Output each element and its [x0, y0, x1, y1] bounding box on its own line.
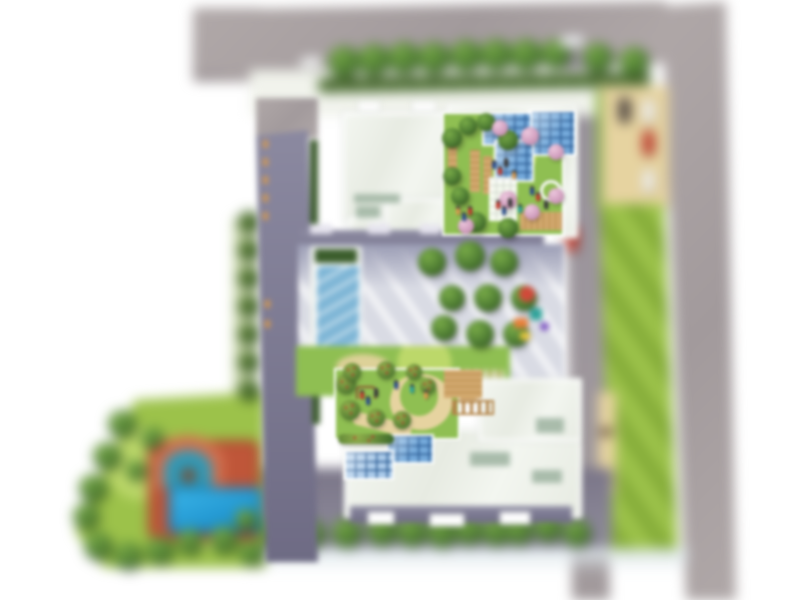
south-tree-row [482, 518, 510, 546]
facade-window [265, 320, 270, 328]
facade-window [263, 212, 268, 220]
roof-vent-2 [356, 206, 380, 218]
spa-circle [181, 468, 196, 483]
courtyard-trees [474, 284, 502, 312]
north-garden-visitors [512, 170, 516, 179]
facade-window [263, 194, 268, 202]
street-trees [510, 39, 542, 71]
west-hedgerow [238, 211, 260, 233]
south-garden-visitors [394, 380, 398, 389]
southwest-boundary-trees [79, 474, 107, 502]
under-building-ground [262, 468, 612, 548]
courtyard-trees [455, 241, 485, 271]
south-tree-row [427, 518, 457, 548]
south-garden-visitors [410, 384, 414, 393]
west-wing-roof-cap [256, 98, 318, 138]
south-garden-trees [406, 364, 422, 380]
north-garden-visitors [536, 192, 540, 201]
north-roof-garden [444, 114, 562, 234]
north-garden-trees-pink [524, 204, 540, 220]
south-tree-row [534, 514, 562, 542]
lower-wing-stub-2 [430, 514, 464, 526]
southwest-boundary-trees [73, 503, 99, 529]
south-tree-row [332, 518, 362, 548]
south-tree-row [262, 517, 292, 547]
north-skylight-2 [482, 112, 532, 146]
south-garden-trees [420, 378, 436, 394]
north-garden-trees-pink [548, 188, 564, 204]
lap-pool [315, 264, 361, 374]
roof-access-box-2 [412, 102, 436, 111]
street-trees [418, 42, 450, 74]
west-hedgerow [238, 267, 260, 289]
courtyard-trees [511, 285, 537, 311]
west-wing-planter [310, 140, 318, 252]
south-wing-roof [344, 428, 582, 518]
garden-bench [600, 428, 612, 436]
roof-vent-5 [532, 470, 562, 483]
southwest-boundary-trees [114, 542, 142, 570]
southwest-boundary-trees [210, 526, 238, 554]
south-tree-row [563, 519, 591, 547]
south-tree-row [455, 517, 483, 545]
street-trees [583, 43, 613, 73]
north-garden-visitors [498, 166, 502, 175]
southwest-lawn-trees [235, 509, 257, 531]
facade-window [263, 158, 268, 166]
balcony-stub-3 [420, 224, 440, 234]
north-hedge [318, 72, 650, 93]
west-hedgerow [238, 351, 260, 373]
north-sidewalk [250, 70, 654, 116]
garden-bench-2 [599, 476, 613, 485]
playground-climber [530, 308, 542, 320]
southwest-boundary-trees [239, 539, 265, 565]
south-sidewalk [246, 548, 688, 574]
north-garden-visitors [492, 160, 496, 169]
lower-wing-stub [368, 512, 394, 524]
north-garden-visitors [456, 206, 460, 215]
north-wing-roof-topstrip [446, 104, 578, 126]
north-skylight [528, 110, 576, 156]
street-trees [388, 42, 420, 74]
west-hedgerow [238, 295, 260, 317]
south-skylight-2 [344, 450, 394, 480]
south-wing-roof-east [478, 378, 582, 442]
playground-slide [514, 318, 528, 328]
west-hedgerow [238, 239, 260, 261]
parking-green-edge [596, 90, 602, 206]
north-garden-trees-pink [548, 144, 564, 160]
garden-trellis [490, 178, 516, 220]
deck-bench [452, 400, 494, 415]
southwest-lawn-trees [126, 460, 146, 480]
north-garden-trees-pink [499, 191, 517, 209]
street-trees [541, 39, 571, 69]
roof-vent [354, 194, 400, 203]
balcony-stub-4 [484, 224, 500, 234]
south-garden-visitors [374, 388, 378, 397]
courtyard-fence [358, 370, 504, 384]
parked-car-white-2 [643, 170, 654, 192]
east-perimeter-road [652, 0, 744, 600]
courtyard-trees [490, 248, 518, 276]
north-garden-visitors [508, 198, 512, 207]
north-garden-trees-green [498, 130, 518, 150]
courtyard-trees [431, 315, 457, 341]
south-garden-visitors [424, 390, 428, 399]
southwest-boundary-trees [84, 532, 112, 560]
south-wing-facade [350, 506, 572, 522]
swing-frame [356, 386, 376, 399]
north-garden-visitors [502, 206, 506, 215]
lap-pool-deck [310, 246, 362, 376]
surface-parking [597, 86, 669, 208]
south-garden-trees [336, 374, 356, 394]
street-trees [619, 47, 649, 77]
north-wing-roof [342, 112, 450, 224]
courtyard-garden-strip [296, 346, 510, 396]
roof-vent-4 [536, 418, 564, 433]
lap-pool-hedge [315, 249, 357, 263]
southwest-boundary-trees [93, 442, 121, 470]
north-wing-roof-eaststrip [554, 114, 578, 238]
southwest-lawn-trees [141, 427, 163, 449]
courtyard-trees [503, 321, 529, 347]
south-garden-trees [393, 411, 411, 429]
site-plan [0, 0, 800, 600]
north-garden-visitors [504, 158, 508, 167]
north-wing-south-facade [300, 230, 544, 262]
street-trees [358, 44, 390, 76]
south-garden-visitors [366, 396, 370, 405]
north-garden-visitors [496, 200, 500, 209]
north-garden-visitors [544, 200, 548, 209]
south-garden-deck [444, 370, 482, 398]
courtyard-shadow [298, 244, 564, 288]
street-trees [328, 46, 360, 78]
south-garden-trees [377, 361, 395, 379]
north-garden-trees-pink [492, 120, 508, 136]
southwest-boundary-trees [108, 410, 136, 438]
garden-path-crescent [390, 374, 452, 430]
north-garden-visitors [518, 204, 522, 213]
southwest-boundary-trees [146, 536, 174, 564]
east-lawn-strip [598, 204, 682, 556]
inner-east-road [556, 52, 614, 600]
pool-arch [152, 436, 224, 488]
car-north-road [299, 56, 322, 69]
south-tree-row [397, 517, 427, 547]
buildings-layer [0, 0, 800, 600]
parked-car-red [643, 131, 654, 155]
north-garden-visitors [530, 186, 534, 195]
playground-umbrella [519, 286, 535, 302]
west-hedgerow [238, 379, 260, 401]
street-trees [480, 39, 512, 71]
lower-wing-stub-3 [500, 512, 530, 524]
west-wing-facade [254, 100, 318, 562]
south-roof-garden [336, 370, 458, 438]
terracotta-pool-deck [148, 440, 260, 540]
southwest-boundary-trees [177, 529, 203, 555]
north-garden-trees-green [442, 128, 462, 148]
south-garden-visitors [360, 390, 364, 399]
north-garden-trees-pink [521, 127, 539, 145]
garden-path-tail [351, 411, 412, 438]
garden-path-crescent-core [400, 376, 438, 416]
south-tree-row [367, 516, 397, 546]
south-tree-row [505, 517, 533, 545]
north-wing-roof-stub [348, 216, 382, 242]
playground-springer [520, 332, 530, 340]
parked-car-dark [619, 98, 630, 122]
west-wing-planter-2 [312, 300, 320, 424]
garden-screen-2 [470, 150, 480, 192]
balcony-stub [310, 224, 332, 234]
roof-access-box [358, 102, 380, 111]
north-garden-trees-green [443, 167, 461, 185]
north-garden-visitors [468, 206, 472, 215]
leisure-pool [168, 487, 262, 533]
garden-screen-3 [483, 156, 492, 194]
west-hedgerow [238, 323, 260, 345]
north-skylight-3 [494, 140, 534, 182]
facade-window [263, 176, 268, 184]
street-trees [450, 40, 482, 72]
flower-hedge [338, 434, 394, 444]
facade-window [263, 140, 268, 148]
south-garden-trees [367, 409, 385, 427]
courtyard-trees [439, 285, 465, 311]
courtyard-trees [418, 248, 446, 276]
parked-car-white [643, 100, 654, 122]
garden-screen [448, 138, 457, 172]
north-garden-trees-green [498, 218, 518, 238]
southwest-lawn [75, 392, 265, 570]
courtyard-deck [438, 380, 498, 402]
roof-vent-3 [470, 452, 510, 466]
south-garden-trees [340, 400, 360, 420]
north-garden-trees-green [466, 212, 486, 232]
west-pavement [233, 218, 257, 394]
north-garden-visitors [462, 212, 466, 221]
north-garden-trees-green [451, 187, 469, 205]
south-skylight [386, 434, 434, 464]
courtyard-trees [466, 320, 494, 348]
south-tree-row [295, 519, 325, 549]
car-inner-road-red [566, 227, 579, 251]
balcony-stub-2 [368, 224, 390, 234]
north-wing-roof-step [384, 198, 456, 242]
north-garden-trees-pink [458, 218, 474, 234]
east-garden-path [598, 392, 616, 494]
gardens-layer [0, 0, 800, 600]
north-garden-trees-green [477, 113, 495, 131]
garden-path-oval [336, 354, 390, 380]
garden-deck [520, 212, 562, 230]
facade-window [265, 300, 270, 308]
north-road-west-stub [193, 8, 263, 82]
garden-ring-feature [540, 180, 562, 202]
car-north-road-2 [560, 35, 585, 48]
periphery-layer [0, 0, 800, 600]
north-perimeter-road [196, 1, 667, 72]
south-garden-trees [343, 363, 361, 381]
north-garden-trees-green [459, 117, 477, 135]
playground-play-toy [540, 322, 549, 331]
pool-arch-water [164, 450, 212, 488]
central-courtyard [298, 244, 564, 380]
